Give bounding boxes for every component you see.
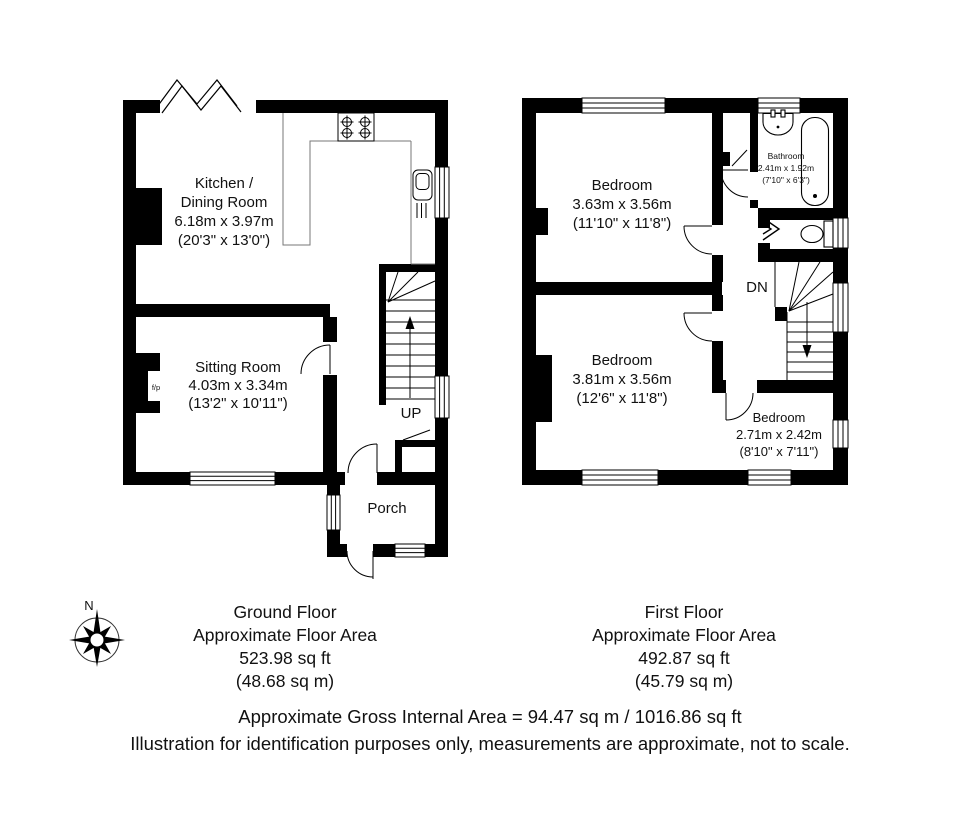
- window-bedroom1-north: [582, 98, 665, 113]
- ground-summary-area-m: (48.68 sq m): [236, 671, 334, 691]
- bedroom1-label: Bedroom: [592, 177, 653, 194]
- stairs-down-label: DN: [746, 279, 768, 296]
- bathroom-size-m: 2.41m x 1.92m: [758, 163, 814, 173]
- stove-icon: [338, 113, 374, 141]
- first-floor-plan: DN Bedroom: [522, 98, 848, 485]
- first-summary-area-m: (45.79 sq m): [635, 671, 733, 691]
- window-porch-south: [395, 544, 425, 557]
- door-bedroom2: [684, 313, 712, 341]
- first-floor-labels: Bedroom 3.63m x 3.56m (11'10" x 11'8") B…: [572, 151, 822, 459]
- basin-icon: [763, 110, 793, 135]
- stairs-up: [386, 272, 435, 399]
- kitchen-label-1: Kitchen /: [195, 175, 254, 192]
- footer-notes: Approximate Gross Internal Area = 94.47 …: [130, 706, 849, 754]
- window-bedroom3-south: [748, 470, 791, 485]
- ground-floor-plan: f/p: [123, 80, 449, 579]
- floorplan-page: f/p: [0, 0, 980, 829]
- door-bathroom: [721, 170, 748, 197]
- bedroom2-label: Bedroom: [592, 352, 653, 369]
- kitchen-label-2: Dining Room: [181, 194, 268, 211]
- sitting-label: Sitting Room: [195, 359, 281, 376]
- bedroom3-label: Bedroom: [753, 410, 806, 425]
- bedroom3-size-m: 2.71m x 2.42m: [736, 427, 822, 442]
- bedroom2-size-ft: (12'6" x 11'8"): [576, 390, 667, 407]
- first-summary-area-ft: 492.87 sq ft: [638, 648, 730, 668]
- fireplace-label: f/p: [152, 383, 160, 392]
- ground-floor-summary: Ground Floor Approximate Floor Area 523.…: [193, 602, 377, 691]
- door-bedroom3: [726, 393, 753, 420]
- ground-summary-subtitle: Approximate Floor Area: [193, 625, 377, 645]
- door-landing-cupboard: [732, 150, 747, 166]
- sink-icon: [413, 170, 432, 218]
- sitting-size-m: 4.03m x 3.34m: [188, 377, 287, 394]
- bedroom3-size-ft: (8'10" x 7'11"): [740, 444, 819, 459]
- window-sitting-south: [190, 472, 275, 485]
- floorplan-canvas: f/p: [0, 0, 980, 829]
- window-bedroom2-south: [582, 470, 658, 485]
- fireplace: f/p: [148, 371, 160, 401]
- bedroom1-size-m: 3.63m x 3.56m: [572, 196, 671, 213]
- compass-rose-icon: N: [69, 598, 125, 667]
- gross-area-text: Approximate Gross Internal Area = 94.47 …: [238, 706, 741, 727]
- bedroom2-size-m: 3.81m x 3.56m: [572, 371, 671, 388]
- bathroom-size-ft: (7'10" x 6'3"): [762, 175, 810, 185]
- toilet-icon: [801, 221, 833, 247]
- sitting-size-ft: (13'2" x 10'11"): [188, 395, 288, 412]
- window-landing-east: [833, 283, 848, 332]
- wall-break-zigzag: [157, 80, 241, 113]
- kitchen-size-m: 6.18m x 3.97m: [174, 213, 273, 230]
- window-porch-west: [327, 495, 340, 530]
- ground-floor-labels: Kitchen / Dining Room 6.18m x 3.97m (20'…: [174, 175, 406, 517]
- window-bedroom3-east: [833, 420, 848, 448]
- first-summary-title: First Floor: [645, 602, 724, 622]
- compass-north-label: N: [84, 598, 93, 613]
- ground-floor-walls: [123, 100, 448, 557]
- disclaimer-text: Illustration for identification purposes…: [130, 733, 849, 754]
- stairs-down: [775, 262, 833, 385]
- window-bathroom-north: [758, 98, 800, 113]
- kitchen-size-ft: (20'3" x 13'0"): [178, 232, 270, 249]
- window-kitchen-east: [435, 167, 449, 218]
- stairs-up-label: UP: [401, 405, 422, 422]
- window-wc-east: [833, 218, 848, 248]
- window-stairs-east: [435, 376, 449, 418]
- bathtub-icon: [802, 118, 829, 206]
- bedroom1-size-ft: (11'10" x 11'8"): [573, 215, 671, 232]
- ground-summary-area-ft: 523.98 sq ft: [239, 648, 331, 668]
- bathroom-label: Bathroom: [768, 151, 805, 161]
- first-floor-summary: First Floor Approximate Floor Area 492.8…: [592, 602, 776, 691]
- ground-summary-title: Ground Floor: [233, 602, 336, 622]
- first-summary-subtitle: Approximate Floor Area: [592, 625, 776, 645]
- porch-label: Porch: [367, 500, 406, 517]
- door-bedroom1: [684, 226, 712, 254]
- door-hall-inner: [348, 444, 377, 473]
